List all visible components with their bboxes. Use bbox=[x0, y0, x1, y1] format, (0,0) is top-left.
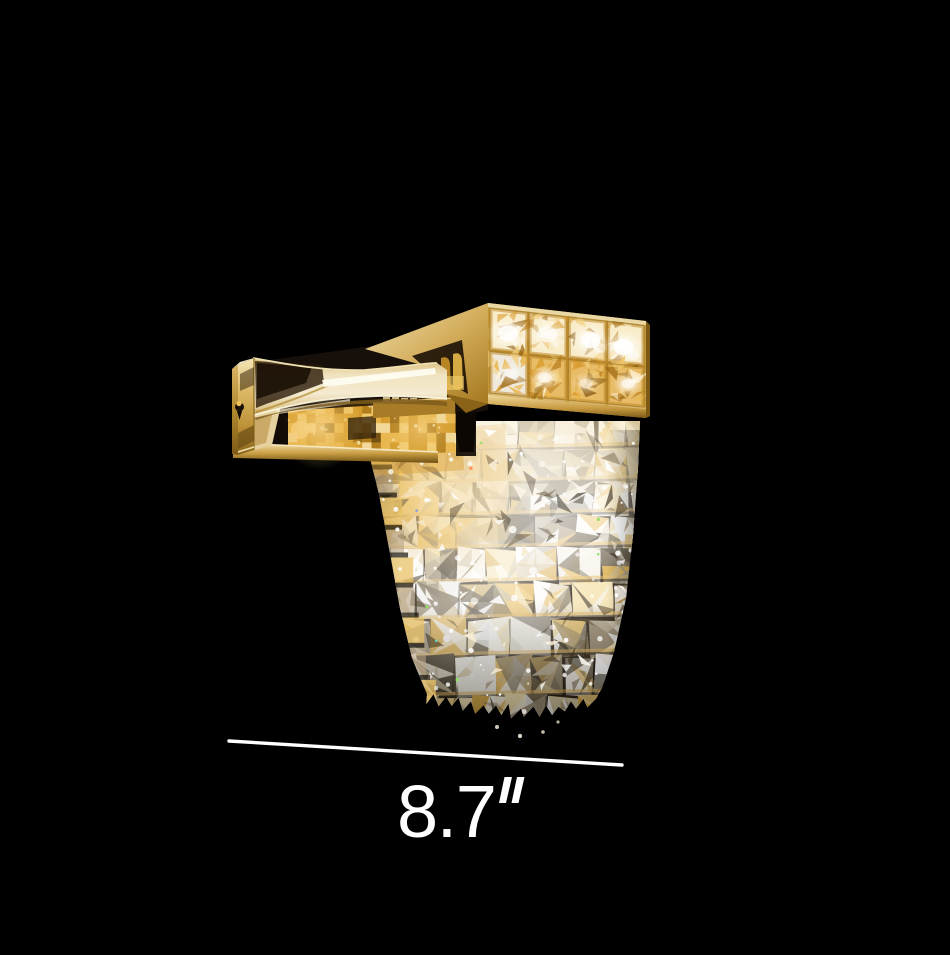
svg-text:8.7: 8.7 bbox=[397, 770, 495, 853]
